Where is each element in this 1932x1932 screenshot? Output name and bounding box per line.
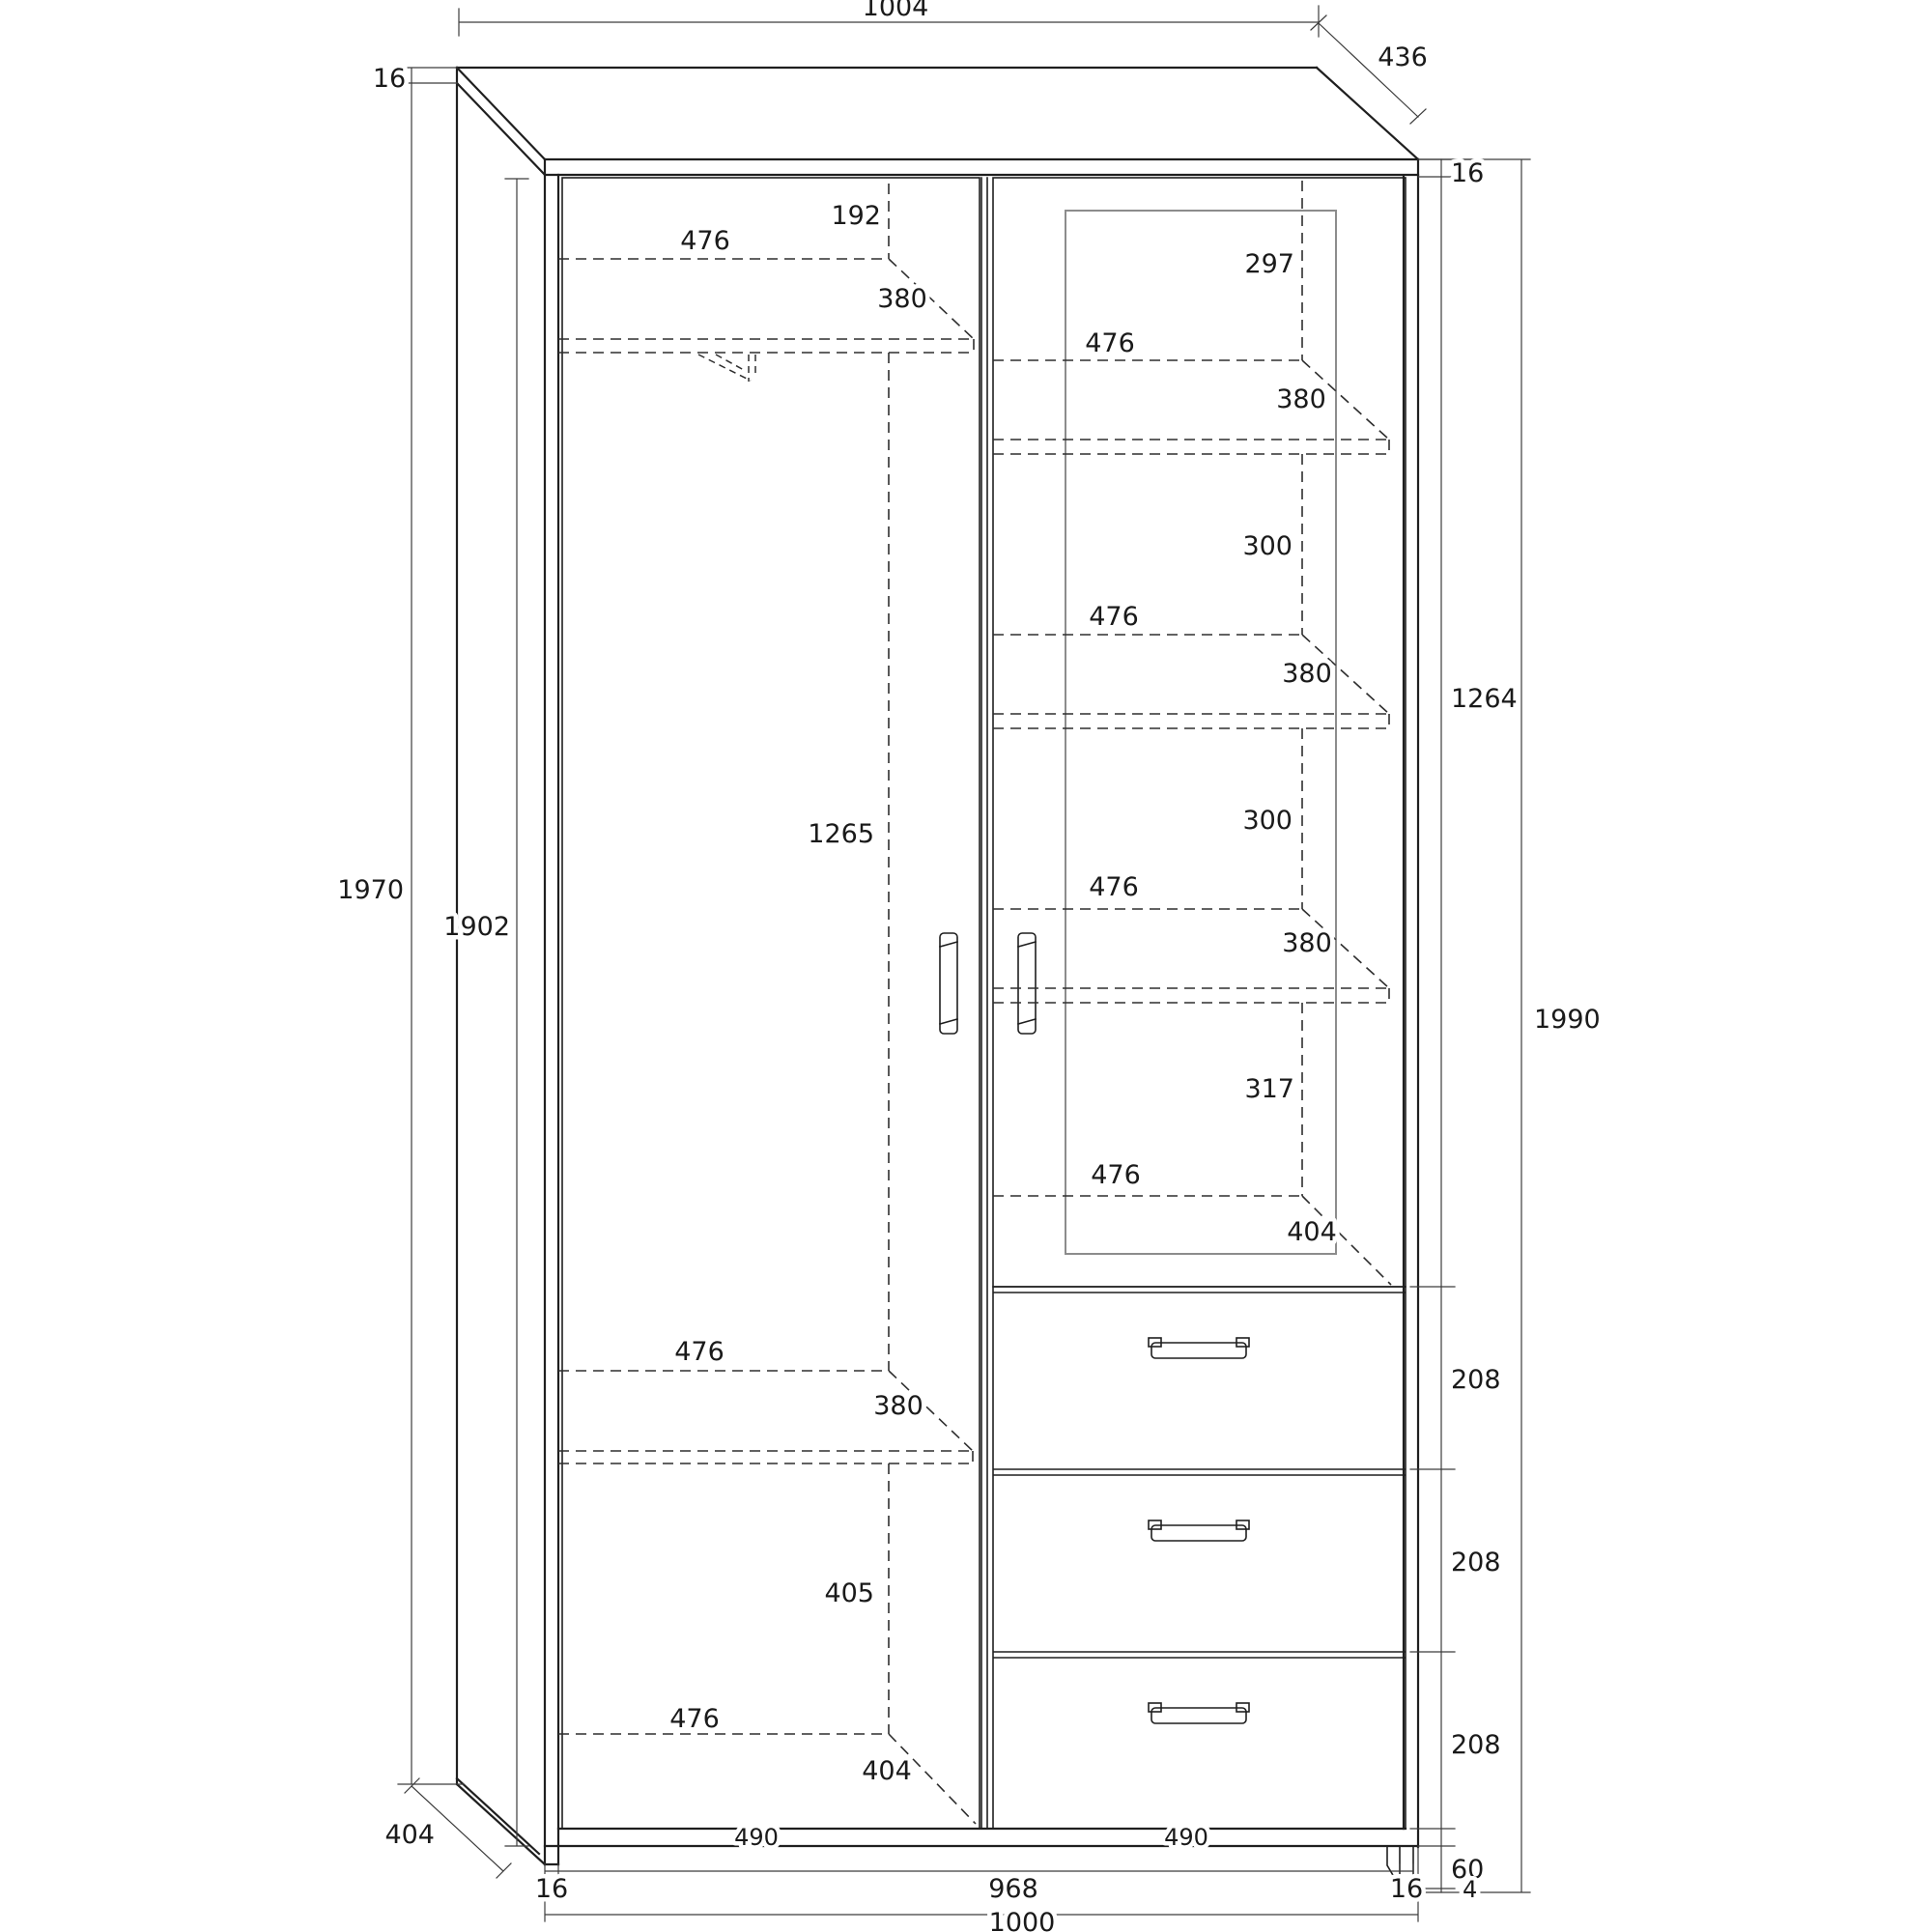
dim-right-gap3: 300: [1242, 806, 1293, 836]
right-side-panel: [1387, 159, 1418, 1889]
dim-row-bottom-2: [545, 1847, 1418, 1921]
handle-bar: [1151, 1708, 1246, 1723]
dim-left-floor-width: 476: [669, 1704, 720, 1734]
handle-bar: [1018, 933, 1036, 1034]
drawer-handle-1: [1149, 1338, 1249, 1358]
dim-side-height: 1970: [337, 875, 404, 905]
right-door: [993, 178, 1406, 1287]
wardrobe-technical-drawing: 1004 436 16 1970 1902 404 16 1264 1990 1…: [0, 0, 1932, 1932]
dim-drawer1-height: 208: [1451, 1365, 1501, 1395]
dim-line-inner-height: [505, 179, 528, 1846]
dim-bottom-left-thickness: 16: [535, 1874, 568, 1904]
dim-row-bottom-1: [545, 1864, 1413, 1878]
drawer-section: [993, 1287, 1406, 1829]
dim-right-shelf2-width: 476: [1089, 602, 1139, 632]
door-gap-lines: [981, 178, 987, 1829]
dim-inner-height: 1902: [443, 912, 510, 942]
dim-right-gap1: 297: [1244, 249, 1294, 279]
left-side-front-edge: [545, 159, 558, 1864]
dim-right-shelf3-depth: 380: [1282, 928, 1332, 958]
dim-right-bottom-width: 490: [1164, 1824, 1208, 1851]
dim-right-shelf2-depth: 380: [1282, 659, 1332, 689]
drawer-dividers: [993, 1287, 1406, 1829]
dim-left-floor-depth: 404: [862, 1756, 912, 1786]
dim-left-shelf2-width: 476: [674, 1337, 724, 1367]
dim-side-bottom-depth: 404: [384, 1820, 435, 1850]
dim-upper-section-height: 1264: [1451, 684, 1518, 714]
right-compartment-hidden: [993, 181, 1391, 1285]
dimension-lines: [398, 6, 1530, 1921]
top-panel: [457, 68, 1418, 175]
drawer-handle-3: [1149, 1703, 1249, 1723]
dim-top-thickness-left: 16: [373, 64, 406, 94]
handle-bar: [940, 933, 957, 1034]
bottom-panel-edges: [545, 1829, 1418, 1846]
dim-overall-height: 1990: [1534, 1005, 1601, 1035]
dim-left-shelf2-depth: 380: [873, 1391, 923, 1421]
dim-left-shelf1-depth: 380: [877, 284, 927, 314]
dim-right-shelf1-depth: 380: [1276, 384, 1326, 414]
dim-left-shelf1-width: 476: [680, 226, 730, 256]
right-shelf-1: [993, 360, 1389, 454]
dim-right-gap2: 300: [1242, 531, 1293, 561]
dim-foot-clearance: 4: [1463, 1876, 1477, 1903]
dim-top-width: 1004: [863, 0, 929, 22]
left-compartment-hidden: [558, 184, 976, 1824]
dim-left-bottom-width: 490: [734, 1824, 779, 1851]
handle-bar: [1151, 1525, 1246, 1541]
left-door-handle: [940, 933, 957, 1034]
handle-caps: [1018, 942, 1036, 1024]
bottom-panel: [545, 1829, 1418, 1846]
page: 1004 436 16 1970 1902 404 16 1264 1990 1…: [0, 0, 1932, 1932]
dim-top-thickness-right: 16: [1451, 158, 1484, 188]
dim-top-depth: 436: [1378, 43, 1428, 72]
left-door: [562, 178, 980, 1829]
dim-left-rod-offset: 192: [831, 201, 881, 231]
dim-right-gap4: 317: [1244, 1074, 1294, 1104]
dim-bottom-total-width: 1000: [989, 1908, 1056, 1932]
dimension-labels: 1004 436 16 1970 1902 404 16 1264 1990 1…: [337, 0, 1600, 1932]
top-panel-front-band: [545, 159, 1418, 175]
dim-right-floor-depth: 404: [1287, 1217, 1337, 1247]
drawer-handle-2: [1149, 1520, 1249, 1541]
dim-right-shelf3-width: 476: [1089, 872, 1139, 902]
dim-right-floor-width: 476: [1091, 1160, 1141, 1190]
center-divider: [981, 178, 987, 1829]
left-door-front: [562, 178, 980, 1829]
dim-drawer3-height: 208: [1451, 1730, 1501, 1760]
right-door-handle: [1018, 933, 1036, 1034]
dim-bottom-right-thickness: 16: [1390, 1874, 1423, 1904]
handle-caps: [940, 942, 957, 1024]
top-panel-left-edge: [457, 68, 545, 175]
left-floor: [558, 1734, 976, 1824]
left-top-shelf: [558, 184, 974, 353]
dim-right-shelf1-width: 476: [1085, 328, 1135, 358]
hanger-rod-bracket-icon: [698, 355, 755, 382]
handle-bar: [1151, 1343, 1246, 1358]
dim-line-top-thickness-left: [406, 68, 457, 83]
glass-frame: [1065, 211, 1336, 1254]
dim-left-lower-height: 405: [824, 1578, 874, 1608]
dim-line-overall-height: [1413, 159, 1530, 1892]
right-door-front: [993, 178, 1406, 1287]
dim-left-hanging-height: 1265: [808, 819, 874, 849]
left-side-panel: [457, 68, 558, 1864]
dim-drawer2-height: 208: [1451, 1548, 1501, 1577]
dim-bottom-inner-width: 968: [988, 1874, 1038, 1904]
top-panel-right-edge: [1317, 68, 1418, 159]
left-side-bottom-edge: [457, 1778, 558, 1864]
